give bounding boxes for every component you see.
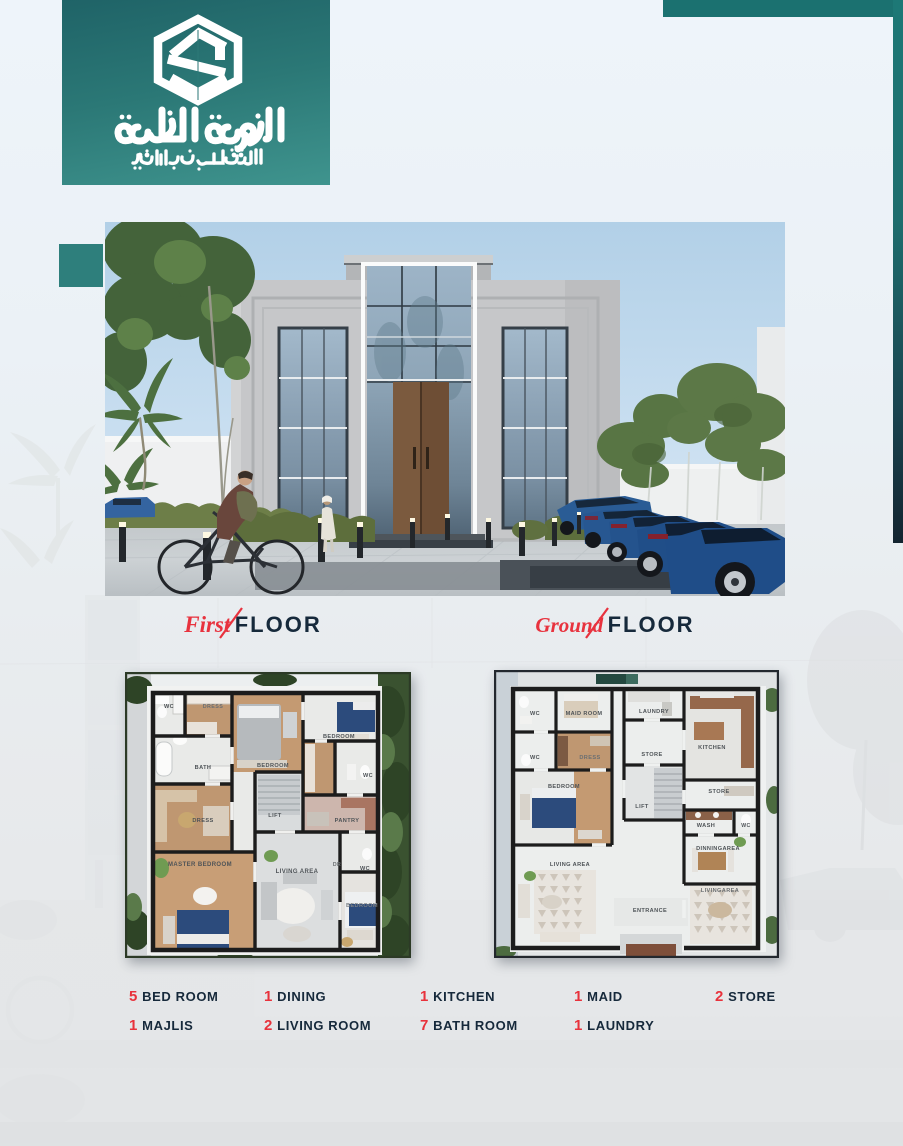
svg-text:WC: WC: [363, 773, 373, 779]
svg-text:DRESS: DRESS: [192, 818, 213, 824]
svg-text:DRESS: DRESS: [203, 704, 224, 710]
svg-text:LIVING AREA: LIVING AREA: [550, 862, 590, 868]
svg-text:LIFT: LIFT: [635, 804, 649, 810]
svg-text:BATH: BATH: [195, 765, 212, 771]
svg-text:BEDROOM: BEDROOM: [257, 763, 289, 769]
svg-text:PANTRY: PANTRY: [335, 818, 360, 824]
svg-text:LIFT: LIFT: [268, 813, 282, 819]
svg-text:STORE: STORE: [708, 789, 729, 795]
svg-text:BEDROOM: BEDROOM: [323, 734, 355, 740]
svg-text:LIVING AREA: LIVING AREA: [276, 869, 319, 875]
svg-text:WASH: WASH: [697, 823, 715, 829]
svg-text:ENTRANCE: ENTRANCE: [633, 908, 667, 914]
svg-text:DR: DR: [333, 862, 341, 868]
svg-text:LAUNDRY: LAUNDRY: [639, 709, 669, 715]
svg-text:WC: WC: [530, 755, 540, 761]
svg-text:WC: WC: [360, 866, 370, 872]
svg-text:STORE: STORE: [641, 752, 662, 758]
svg-text:KITCHEN: KITCHEN: [698, 745, 726, 751]
svg-text:DRESS: DRESS: [579, 755, 600, 761]
svg-text:BEDROOM: BEDROOM: [346, 903, 378, 909]
svg-text:MASTER BEDROOM: MASTER BEDROOM: [168, 862, 232, 868]
svg-text:BEDROOM: BEDROOM: [548, 784, 580, 790]
svg-text:WC: WC: [741, 823, 750, 829]
svg-text:LIVINGAREA: LIVINGAREA: [701, 888, 740, 894]
svg-text:DINNINGAREA: DINNINGAREA: [696, 846, 740, 852]
svg-text:WC: WC: [530, 711, 540, 717]
svg-text:WC: WC: [164, 704, 174, 710]
svg-text:MAID ROOM: MAID ROOM: [566, 711, 603, 717]
